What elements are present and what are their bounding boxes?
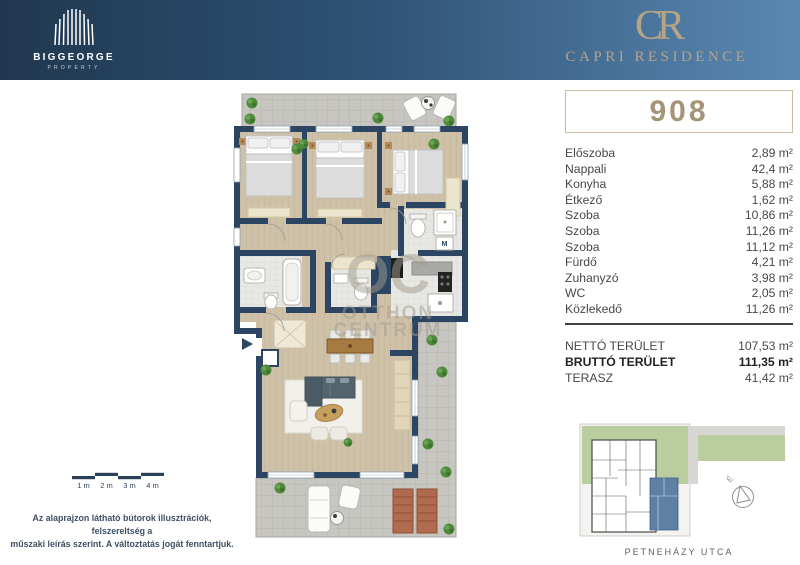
svg-text:OC: OC (346, 242, 430, 305)
total-row: NETTÓ TERÜLET107,53 m² (565, 338, 793, 354)
site-plan: É PETNEHÁZY UTCA (570, 416, 795, 557)
divider (565, 323, 793, 325)
armchair (290, 401, 307, 421)
svg-text:2 m: 2 m (100, 481, 113, 490)
svg-text:3 m: 3 m (123, 481, 136, 490)
capri-residence-logo: CR CAPRI RESIDENCE (532, 4, 782, 66)
entrance-arrow-icon (242, 338, 253, 350)
total-row: TERASZ41,42 m² (565, 370, 793, 386)
unit-number-box: 908 (565, 90, 793, 133)
biggeorge-logo: BIGGEORGE PROPERTY (26, 9, 122, 71)
watermark: OC OTTHON CENTRUM (334, 242, 443, 341)
floorplan-sheet: BIGGEORGE PROPERTY CR CAPRI RESIDENCE (0, 0, 800, 565)
table-row: Nappali42,4 m² (565, 162, 793, 178)
biggeorge-sub: PROPERTY (26, 65, 122, 71)
cr-monogram: CR (532, 4, 782, 48)
room-list: Előszoba2,89 m² Nappali42,4 m² Konyha5,8… (565, 146, 793, 318)
site-plan-map: É (570, 416, 795, 538)
table-row: WC2,05 m² (565, 286, 793, 302)
table-row: Szoba11,12 m² (565, 240, 793, 256)
table-row: Előszoba2,89 m² (565, 146, 793, 162)
sideboard (394, 360, 410, 430)
info-panel: 908 Előszoba2,89 m² Nappali42,4 m² Konyh… (565, 90, 793, 386)
biggeorge-building-icon (48, 9, 100, 45)
table-row: Étkező1,62 m² (565, 193, 793, 209)
svg-text:4 m: 4 m (146, 481, 159, 490)
pouf (330, 427, 347, 440)
pouf (311, 427, 328, 440)
table-row: Közlekedő11,26 m² (565, 302, 793, 318)
table-row: Szoba11,26 m² (565, 224, 793, 240)
table-row: Konyha5,88 m² (565, 177, 793, 193)
disclaimer-line2: műszaki leírás szerint. A változtatás jo… (6, 538, 238, 551)
terrace-top (242, 94, 456, 128)
floor-plan: M (228, 88, 540, 548)
washing-machine-label: M (442, 241, 448, 248)
header-band: BIGGEORGE PROPERTY CR CAPRI RESIDENCE (0, 0, 800, 80)
cr-name: CAPRI RESIDENCE (532, 49, 782, 66)
total-row: BRUTTÓ TERÜLET111,35 m² (565, 354, 793, 370)
totals: NETTÓ TERÜLET107,53 m² BRUTTÓ TERÜLET111… (565, 338, 793, 387)
table-row: Zuhanyzó3,98 m² (565, 271, 793, 287)
disclaimer-line1: Az alaprajzon látható bútorok illusztrác… (6, 512, 238, 538)
street-label: PETNEHÁZY UTCA (570, 547, 788, 557)
table-row: Fürdő4,21 m² (565, 255, 793, 271)
column (262, 350, 278, 366)
svg-text:1 m: 1 m (77, 481, 90, 490)
biggeorge-name: BIGGEORGE (26, 52, 122, 63)
entry-closet (274, 320, 306, 348)
scale-bar: 1 m 2 m 3 m 4 m (60, 466, 175, 492)
compass-icon: É (725, 474, 753, 507)
unit-number: 908 (649, 95, 708, 129)
svg-text:CENTRUM: CENTRUM (334, 320, 443, 341)
compass-north-label: É (725, 474, 735, 484)
table-row: Szoba10,86 m² (565, 208, 793, 224)
disclaimer: Az alaprajzon látható bútorok illusztrác… (6, 512, 238, 551)
